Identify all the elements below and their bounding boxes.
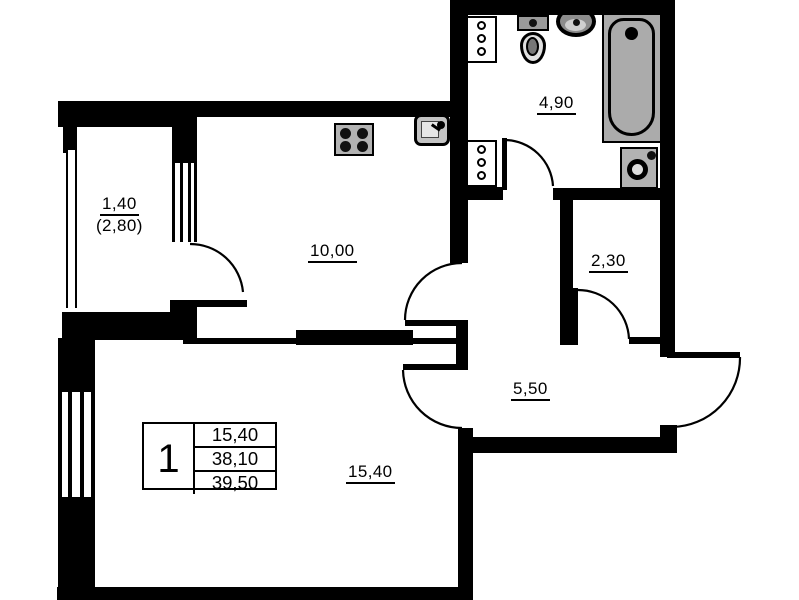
stamp-apartment-area: 38,10 [195,448,275,472]
stamp-living-area: 15,40 [195,424,275,448]
living-room-area-value: 15,40 [346,462,395,484]
balcony-door-arc [190,244,243,292]
bathroom-door-arc [505,140,553,186]
bathroom-area-value: 4,90 [537,93,576,115]
living-door-arc [403,370,462,428]
kitchen-area-label: 10,00 [308,241,357,261]
balcony-area-secondary-value: (2,80) [96,216,143,235]
living-room-area-label: 15,40 [346,462,395,482]
balcony-area-secondary-label: (2,80) [96,216,143,236]
stamp-rooms-count: 1 [144,424,195,494]
kitchen-area-value: 10,00 [308,241,357,263]
hallway-area-value: 5,50 [511,379,550,401]
storage-door-arc [577,290,629,339]
bathroom-area-label: 4,90 [537,93,576,113]
balcony-area-value: 1,40 [100,194,139,216]
door-arcs-layer [0,0,799,600]
stamp-total-area: 39,50 [195,472,275,494]
balcony-area-label: 1,40 [100,194,139,214]
hallway-area-label: 5,50 [511,379,550,399]
kitchen-door-arc [405,263,462,320]
floor-plan: 1,40 (2,80) 10,00 4,90 2,30 5,50 15,40 1… [0,0,799,600]
apartment-stamp-table: 1 15,40 38,10 39,50 [142,422,277,490]
entrance-door-arc [672,357,740,427]
storage-area-value: 2,30 [589,251,628,273]
storage-area-label: 2,30 [589,251,628,271]
